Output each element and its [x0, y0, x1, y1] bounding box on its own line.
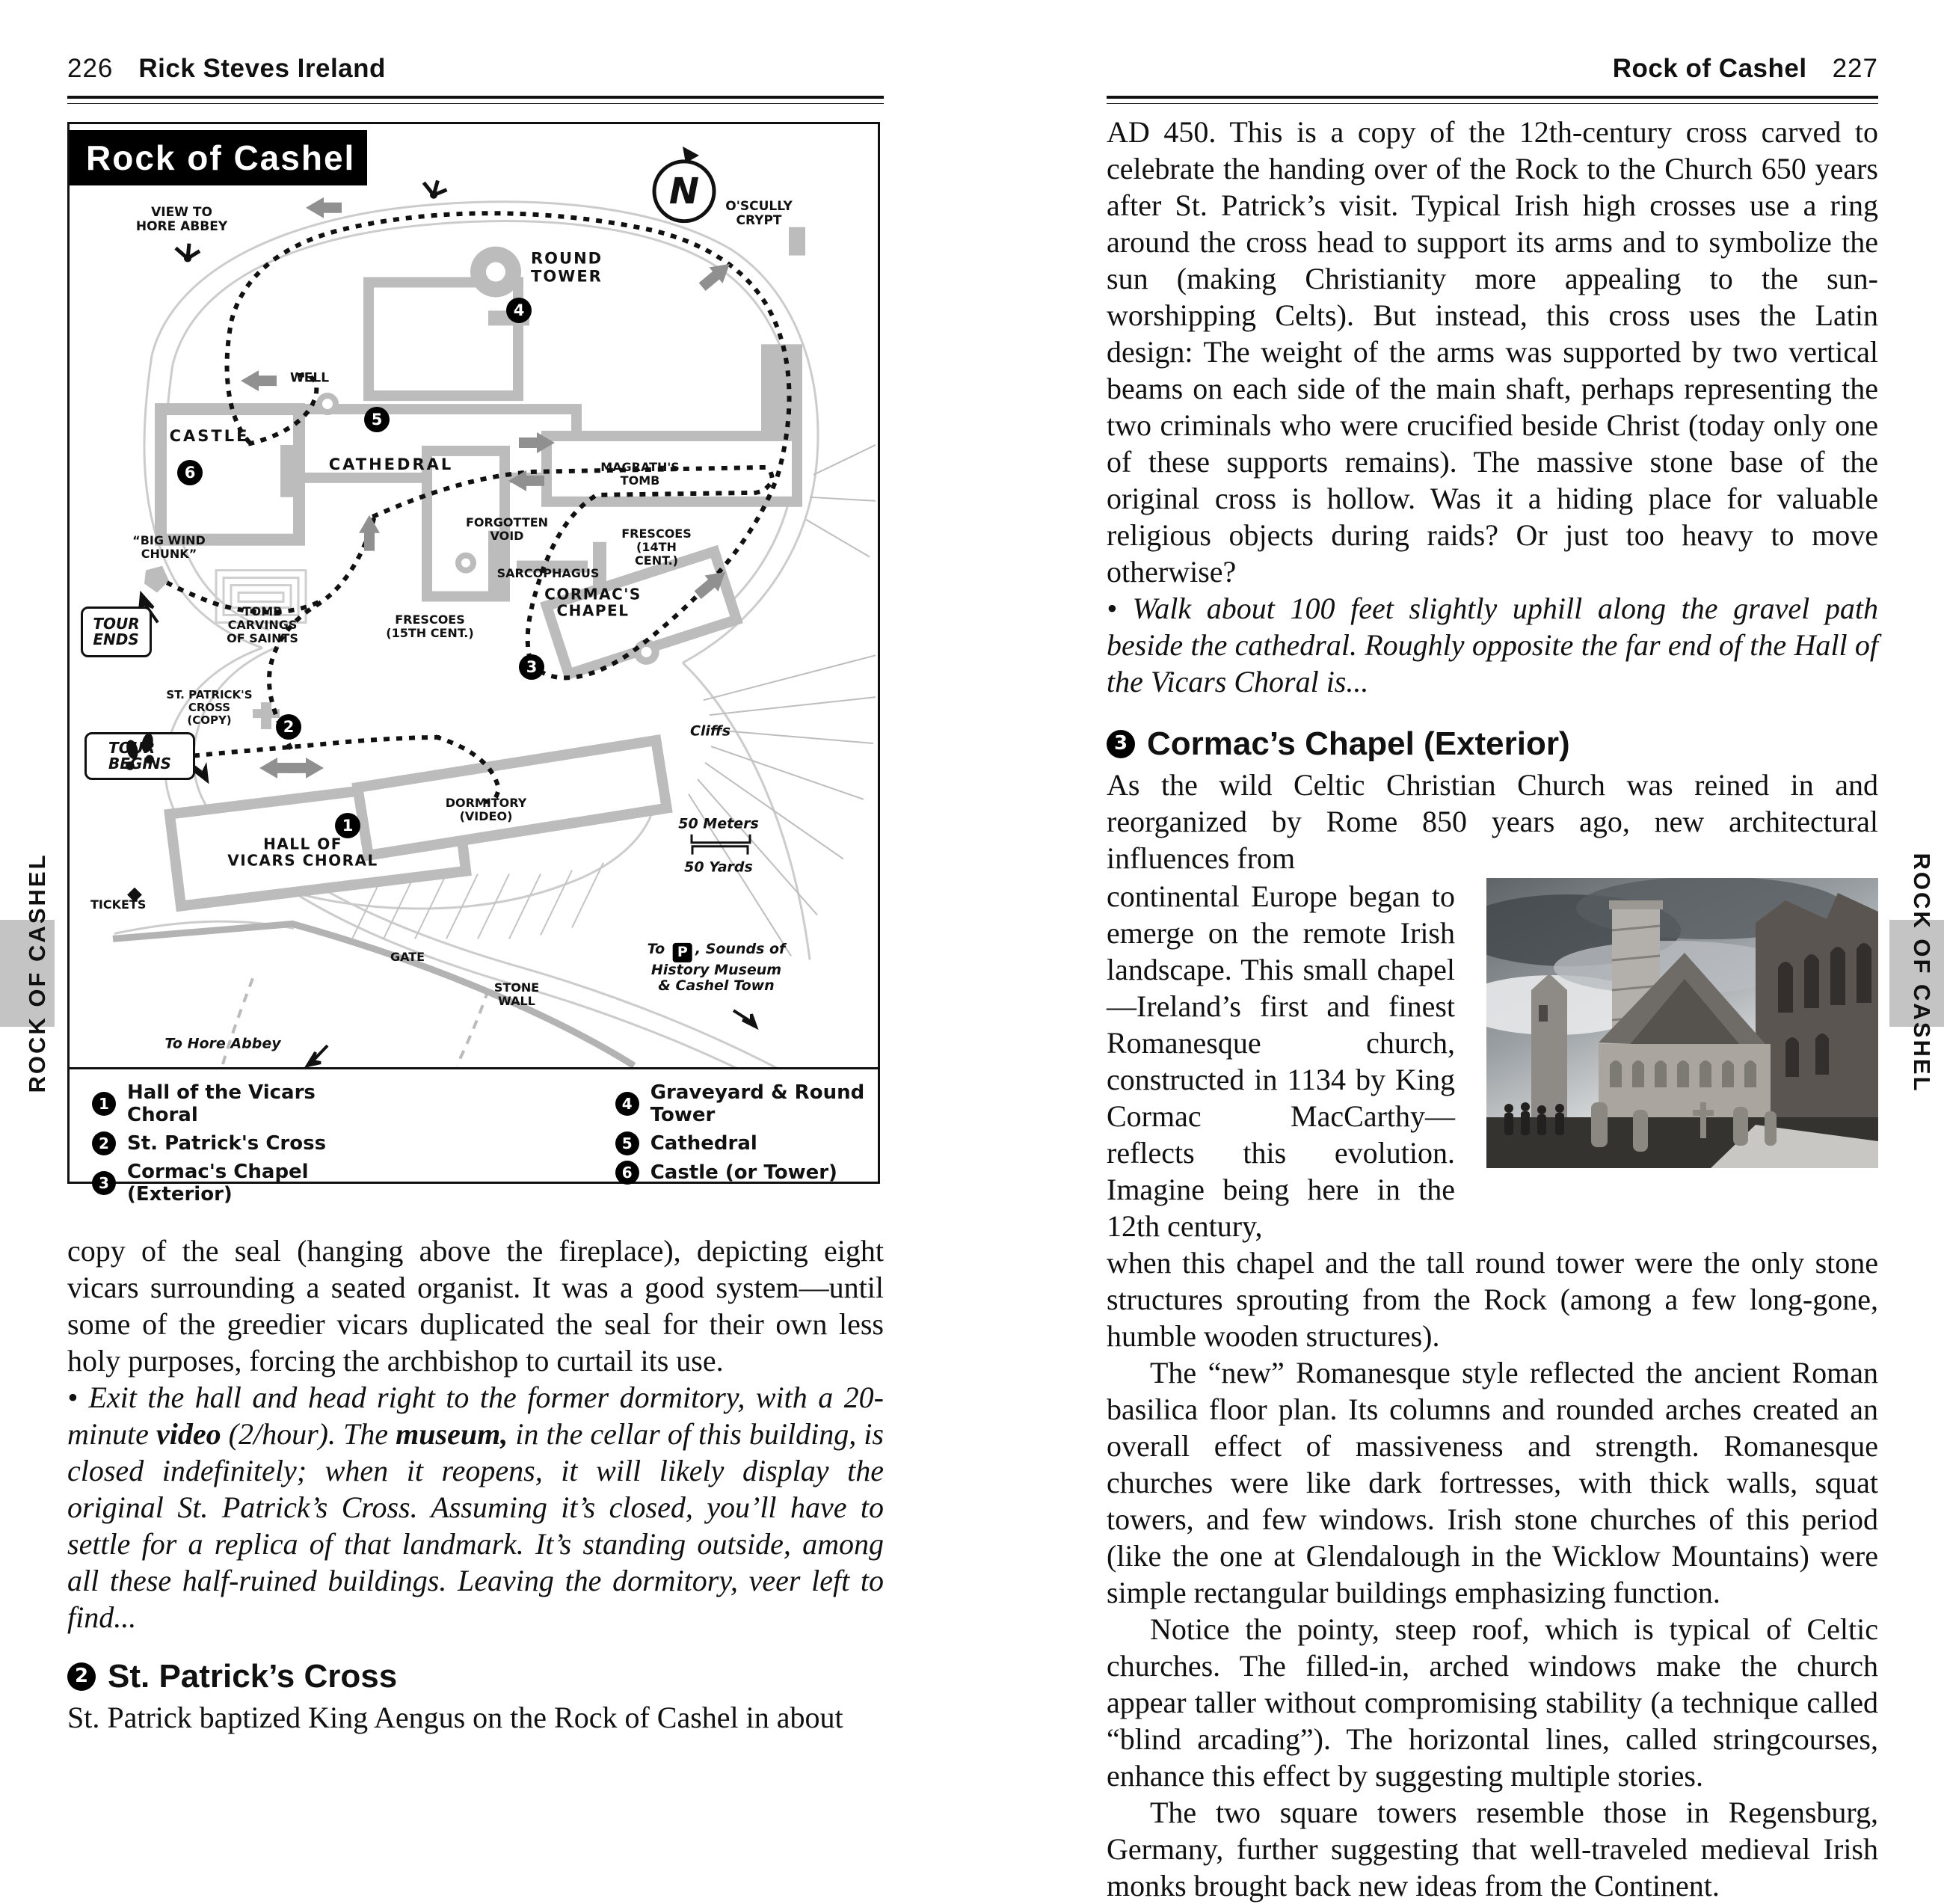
scale-meters-label: 50 Meters	[678, 816, 759, 832]
cliffs-label: Cliffs	[690, 723, 730, 739]
to-hore-abbey-label: To Hore Abbey	[164, 1036, 280, 1051]
heading-3-badge: 3	[1107, 730, 1135, 758]
right-page-header: Rock of Cashel 227	[1107, 54, 1878, 84]
legend-item-5: 5Cathedral	[615, 1131, 878, 1155]
oscully-crypt-label: O'SCULLY CRYPT	[725, 200, 793, 228]
left-paragraph-exit-directions: • Exit the hall and head right to the fo…	[67, 1379, 884, 1636]
compass-icon: N	[654, 147, 714, 221]
legend-label-1: Hall of the Vicars Choral	[127, 1081, 361, 1126]
text-segment: video	[156, 1417, 221, 1451]
right-paragraph-walk-directions: • Walk about 100 feet slightly uphill al…	[1107, 590, 1878, 700]
right-paragraph-ad450: AD 450. This is a copy of the 12th-centu…	[1107, 114, 1878, 590]
right-paragraph-romanesque: The “new” Romanesque style reflected the…	[1107, 1354, 1878, 1611]
legend-badge-2: 2	[92, 1131, 116, 1155]
view-to-hore-abbey-label: VIEW TO HORE ABBEY	[136, 206, 227, 234]
legend-col1: 1Hall of the Vicars Choral2St. Patrick's…	[92, 1081, 361, 1182]
forgotten-void-label: FORGOTTEN VOID	[466, 516, 548, 543]
right-paragraph-pointy-roof: Notice the pointy, steep roof, which is …	[1107, 1611, 1878, 1794]
left-page-title: Rick Steves Ireland	[138, 54, 386, 84]
legend-col2: 4Graveyard & Round Tower5Cathedral6Castl…	[615, 1081, 878, 1182]
left-margin-tab-label: ROCK OF CASHEL	[24, 853, 51, 1093]
tour-ends-box: TOUR ENDS	[81, 606, 152, 657]
left-paragraph-seal: copy of the seal (hanging above the fire…	[67, 1232, 884, 1379]
map-marker-2: 2	[276, 714, 301, 740]
legend-item-3: 3Cormac's Chapel (Exterior)	[92, 1161, 361, 1206]
sarcophagus-label: SARCOPHAGUS	[497, 567, 600, 580]
legend-badge-5: 5	[615, 1131, 639, 1155]
heading-cormacs-chapel: 3 Cormac’s Chapel (Exterior)	[1107, 725, 1878, 762]
left-page-header: 226 Rick Steves Ireland	[67, 54, 386, 84]
svg-text:N: N	[669, 171, 699, 212]
cormacs-chapel-photo	[1486, 878, 1878, 1168]
scale-yards-label: 50 Yards	[684, 859, 753, 875]
heading-3-text: Cormac’s Chapel (Exterior)	[1147, 725, 1570, 762]
tour-ends-label: TOUR ENDS	[93, 616, 139, 648]
tour-begins-box: TOUR BEGINS	[84, 732, 195, 780]
frescoes-15th-label: FRESCOES (15TH CENT.)	[386, 613, 473, 640]
well-label: WELL	[290, 371, 329, 385]
stone-wall-label: STONE WALL	[494, 981, 539, 1008]
cormacs-chapel-label: CORMAC'S CHAPEL	[544, 586, 642, 620]
legend-badge-4: 4	[615, 1092, 639, 1116]
map-marker-6: 6	[177, 460, 203, 485]
footprints-icon	[87, 734, 193, 778]
map-drawing: N	[70, 124, 878, 1067]
map-title-bar: Rock of Cashel	[70, 130, 367, 185]
heading-st-patricks-cross: 2 St. Patrick’s Cross	[67, 1658, 884, 1695]
map-legend: 1Hall of the Vicars Choral2St. Patrick's…	[70, 1067, 878, 1182]
legend-label-3: Cormac's Chapel (Exterior)	[127, 1161, 361, 1206]
hall-of-vicars-choral-label: HALL OF VICARS CHORAL	[227, 836, 378, 870]
legend-item-6: 6Castle (or Tower)	[615, 1161, 878, 1185]
right-page-title: Rock of Cashel	[1613, 54, 1807, 84]
left-page-number: 226	[67, 54, 113, 84]
frescoes-14th-label: FRESCOES (14TH CENT.)	[621, 527, 692, 568]
map-canvas: N VIEW TO HORE ABBEYO'SCULLY CRYPTROUND …	[70, 124, 878, 1067]
gate-label: GATE	[390, 951, 425, 964]
text-segment: (2/hour). The	[221, 1417, 396, 1451]
to-parking-sounds-of-history-label: To P, Sounds of History Museum & Cashel …	[648, 942, 786, 994]
st-patricks-cross-copy-label: ST. PATRICK'S CROSS (COPY)	[166, 689, 252, 726]
text-segment: museum,	[396, 1417, 508, 1451]
cathedral-label: CATHEDRAL	[329, 456, 454, 474]
big-wind-chunk-label: “BIG WIND CHUNK”	[132, 534, 206, 561]
legend-label-6: Castle (or Tower)	[650, 1161, 837, 1184]
left-body-column: copy of the seal (hanging above the fire…	[67, 1232, 884, 1736]
right-margin-tab-label: ROCK OF CASHEL	[1908, 853, 1935, 1093]
legend-label-5: Cathedral	[650, 1132, 757, 1155]
left-header-rule	[67, 96, 884, 104]
heading-2-badge: 2	[67, 1662, 96, 1691]
tickets-label: TICKETS	[90, 898, 146, 912]
right-header-rule	[1107, 96, 1878, 104]
parking-icon: P	[673, 943, 692, 962]
legend-item-2: 2St. Patrick's Cross	[92, 1131, 361, 1155]
map-marker-3: 3	[519, 654, 544, 680]
legend-badge-1: 1	[92, 1092, 116, 1116]
legend-label-2: St. Patrick's Cross	[127, 1132, 326, 1155]
map-marker-5: 5	[364, 407, 390, 432]
legend-item-4: 4Graveyard & Round Tower	[615, 1081, 878, 1126]
map-title: Rock of Cashel	[86, 138, 355, 178]
heading-2-text: St. Patrick’s Cross	[108, 1658, 397, 1695]
right-paragraph-round-tower: when this chapel and the tall round towe…	[1107, 1244, 1878, 1354]
rock-of-cashel-map: N VIEW TO HORE ABBEYO'SCULLY CRYPTROUND …	[67, 122, 880, 1184]
castle-label: CASTLE	[170, 428, 250, 446]
legend-badge-6: 6	[615, 1161, 639, 1185]
dormitory-label: DORMITORY (VIDEO)	[446, 796, 527, 823]
legend-item-1: 1Hall of the Vicars Choral	[92, 1081, 361, 1126]
map-marker-1: 1	[335, 813, 360, 838]
right-paragraph-celtic-church: As the wild Celtic Christian Church was …	[1107, 767, 1878, 876]
right-body-column: AD 450. This is a copy of the 12th-centu…	[1107, 114, 1878, 1904]
round-tower-label: ROUND TOWER	[531, 250, 603, 285]
right-paragraph-wrapped: continental Europe began to emerge on th…	[1107, 878, 1455, 1244]
left-paragraph-baptized: St. Patrick baptized King Aengus on the …	[67, 1699, 884, 1736]
right-paragraph-square-towers: The two square towers resemble those in …	[1107, 1794, 1878, 1904]
right-page-number: 227	[1833, 54, 1878, 84]
tomb-carvings-of-saints-label: TOMB CARVINGS OF SAINTS	[227, 605, 298, 645]
magraths-tomb-label: MAGRATH'S TOMB	[600, 461, 680, 488]
legend-label-4: Graveyard & Round Tower	[650, 1081, 878, 1126]
map-marker-4: 4	[506, 298, 532, 323]
legend-badge-3: 3	[92, 1171, 116, 1195]
